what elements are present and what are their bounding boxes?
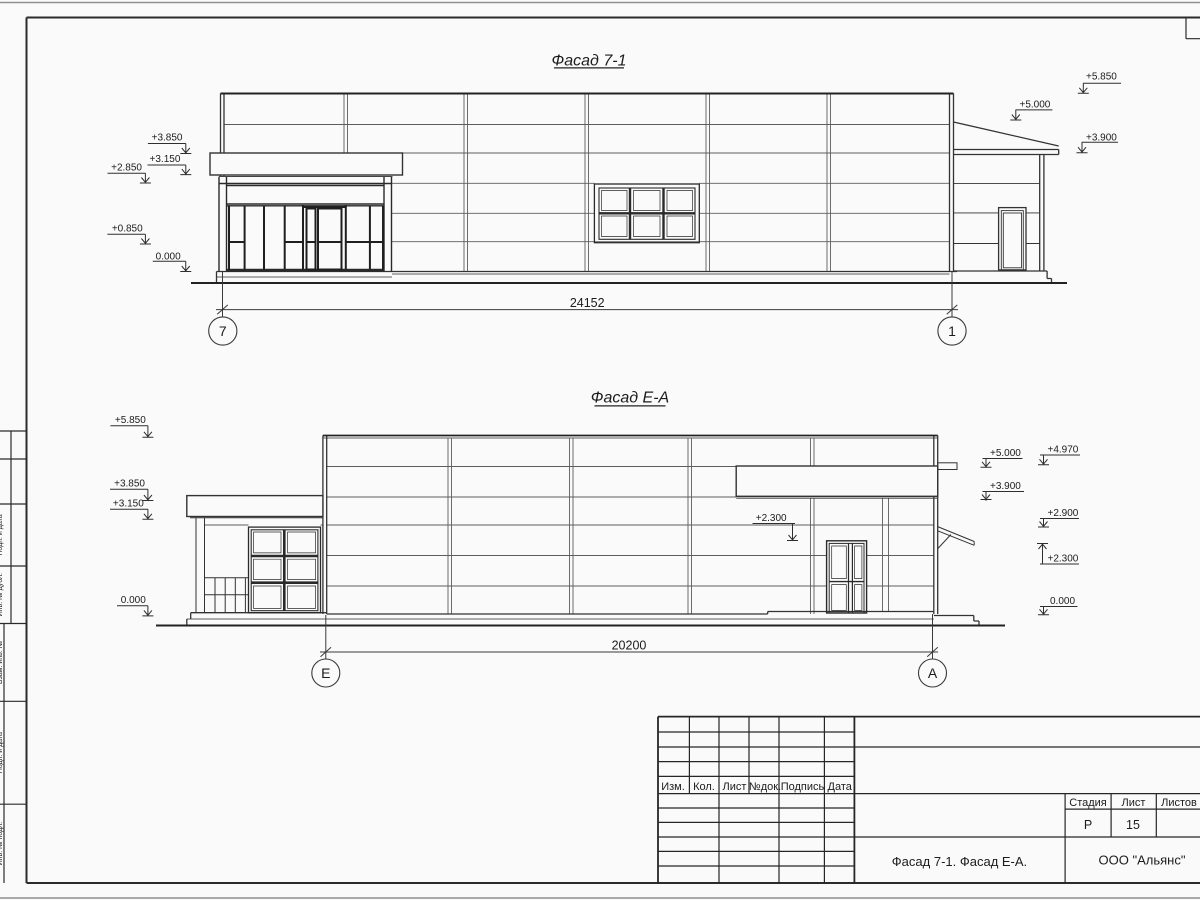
svg-text:+0.850: +0.850 — [112, 223, 143, 234]
svg-text:+2.300: +2.300 — [1048, 554, 1079, 565]
svg-text:Подпись: Подпись — [781, 781, 825, 793]
svg-text:Е: Е — [321, 665, 330, 681]
svg-text:Стадия: Стадия — [1069, 797, 1107, 809]
svg-text:+2.300: +2.300 — [756, 513, 787, 524]
svg-text:Фасад 7-1: Фасад 7-1 — [552, 53, 627, 70]
svg-text:Листов: Листов — [1161, 797, 1197, 809]
svg-text:А: А — [928, 665, 938, 681]
svg-text:Лист: Лист — [1122, 797, 1146, 809]
svg-text:+3.150: +3.150 — [150, 154, 181, 165]
svg-text:Р: Р — [1084, 818, 1092, 832]
svg-text:+5.000: +5.000 — [1020, 100, 1051, 111]
svg-text:Лист: Лист — [723, 781, 747, 793]
svg-text:+3.850: +3.850 — [114, 478, 145, 489]
svg-text:Фасад 7-1. Фасад Е-А.: Фасад 7-1. Фасад Е-А. — [892, 854, 1027, 869]
svg-text:+5.850: +5.850 — [1086, 72, 1117, 83]
svg-text:№док.: №док. — [749, 781, 781, 793]
svg-text:15: 15 — [1126, 818, 1140, 832]
svg-text:24152: 24152 — [570, 296, 605, 310]
svg-text:0.000: 0.000 — [1050, 596, 1075, 607]
svg-text:Взам. инв. №: Взам. инв. № — [0, 641, 4, 684]
svg-text:ООО "Альянс": ООО "Альянс" — [1099, 853, 1186, 868]
svg-text:+2.900: +2.900 — [1048, 508, 1079, 519]
svg-text:20200: 20200 — [612, 639, 647, 653]
svg-text:+4.970: +4.970 — [1048, 444, 1079, 455]
svg-text:Изм.: Изм. — [661, 781, 685, 793]
svg-text:1: 1 — [948, 323, 956, 339]
svg-text:0.000: 0.000 — [156, 252, 181, 263]
svg-text:+2.850: +2.850 — [111, 163, 142, 174]
svg-text:Инв. № дубл.: Инв. № дубл. — [0, 573, 4, 616]
svg-text:+3.150: +3.150 — [113, 498, 144, 509]
svg-text:Дата: Дата — [828, 781, 853, 793]
svg-text:Подп. и дата: Подп. и дата — [0, 732, 4, 773]
svg-text:Фасад Е-А: Фасад Е-А — [591, 390, 669, 407]
svg-text:7: 7 — [219, 323, 227, 339]
svg-text:+3.900: +3.900 — [1086, 133, 1117, 144]
svg-text:+5.000: +5.000 — [990, 448, 1021, 459]
svg-text:0.000: 0.000 — [121, 595, 146, 606]
svg-text:+3.850: +3.850 — [152, 133, 183, 144]
svg-text:Инв. № подл.: Инв. № подл. — [0, 822, 4, 866]
svg-text:+3.900: +3.900 — [990, 481, 1021, 492]
svg-text:+5.850: +5.850 — [115, 415, 146, 426]
svg-text:Подп. и дата: Подп. и дата — [0, 514, 4, 555]
svg-text:Кол.: Кол. — [693, 781, 715, 793]
